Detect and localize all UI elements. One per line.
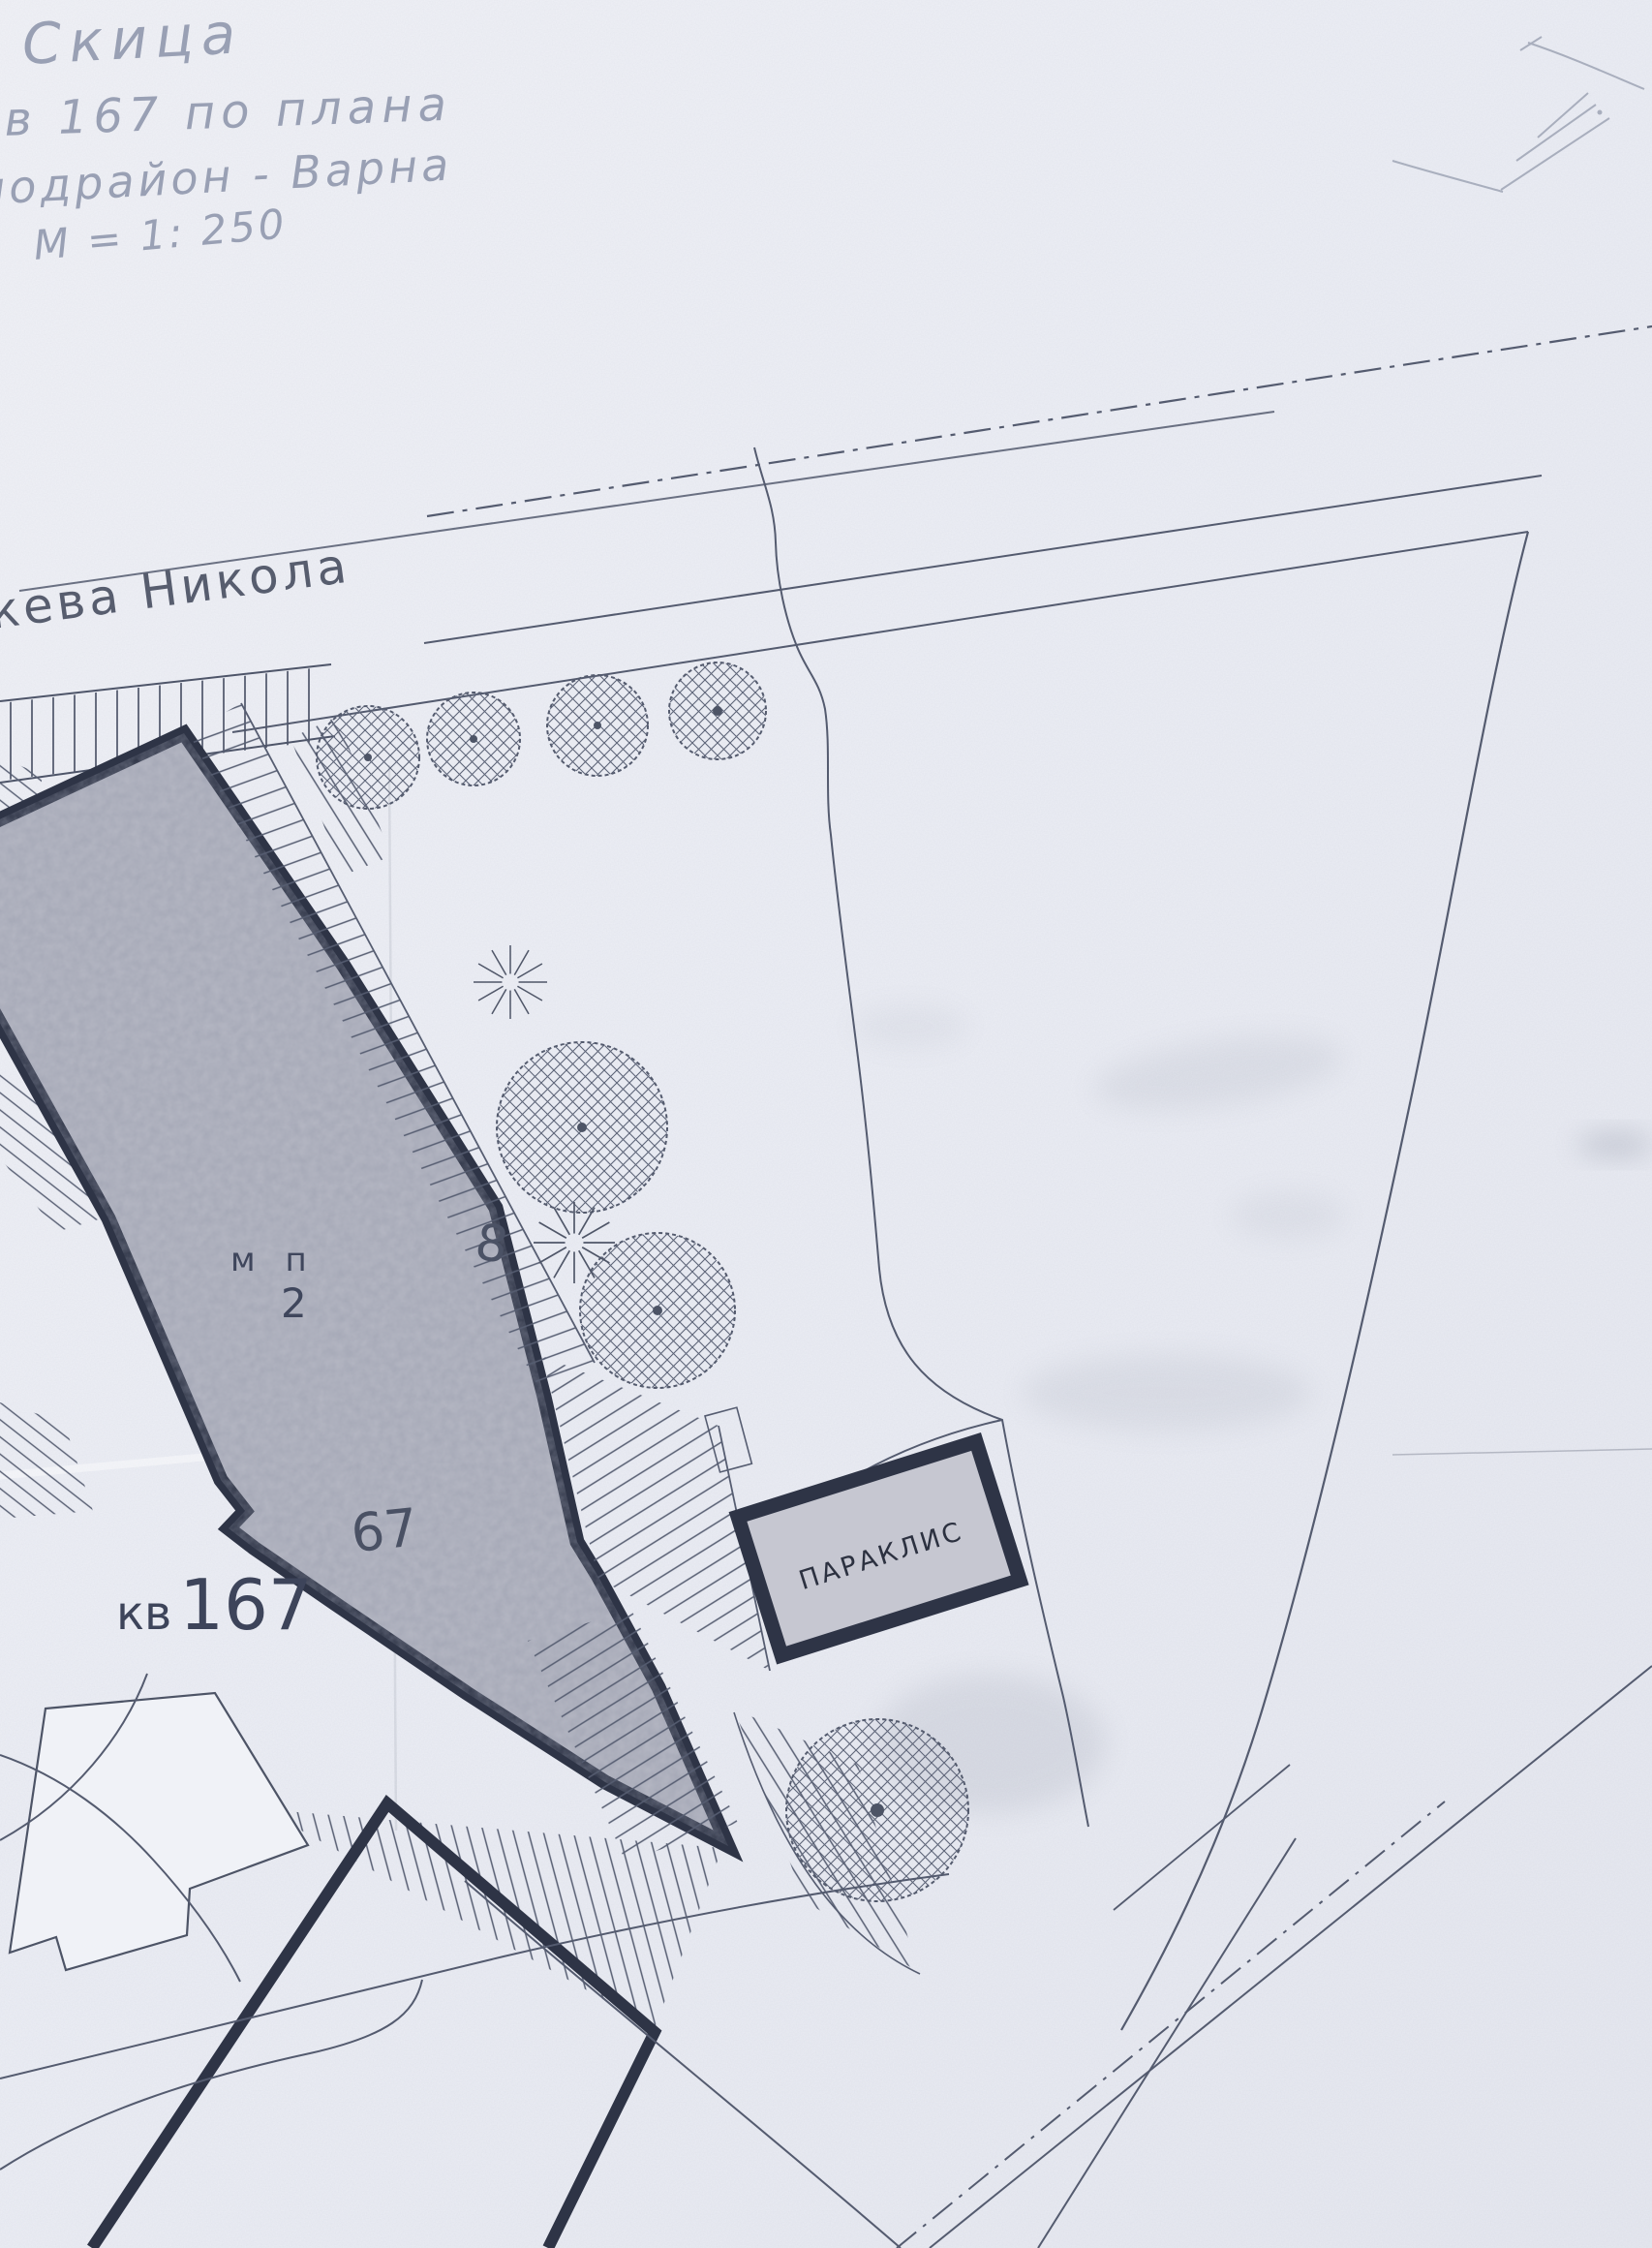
land-use-index: 2 xyxy=(281,1279,307,1327)
title-handwritten: Скица xyxy=(20,0,244,77)
cadastral-sketch-canvas: ПАРАКЛИС кева Никола кв167 67 м п 2 8 Ск… xyxy=(0,0,1652,2248)
land-use-label: м п xyxy=(230,1241,317,1279)
block-prefix: кв xyxy=(116,1586,171,1641)
parcel-number-label: 67 xyxy=(349,1496,421,1564)
scanned-cadastral-sketch: ПАРАКЛИС кева Никола кв167 67 м п 2 8 Ск… xyxy=(0,0,1652,2248)
block-number: 167 xyxy=(179,1564,312,1646)
